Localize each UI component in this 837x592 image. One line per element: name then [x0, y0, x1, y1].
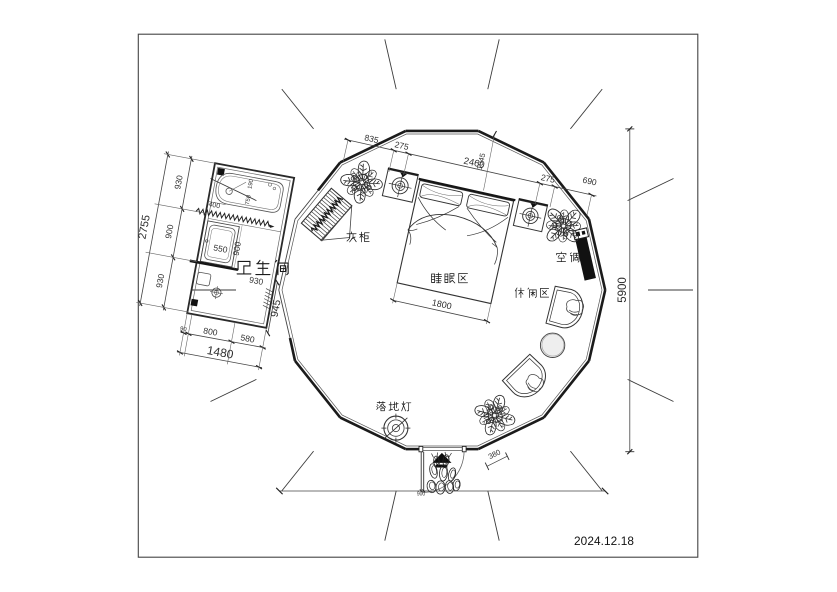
svg-text:2024.12.18: 2024.12.18	[574, 534, 634, 548]
svg-text:900: 900	[417, 492, 426, 498]
svg-text:5900: 5900	[617, 277, 629, 303]
